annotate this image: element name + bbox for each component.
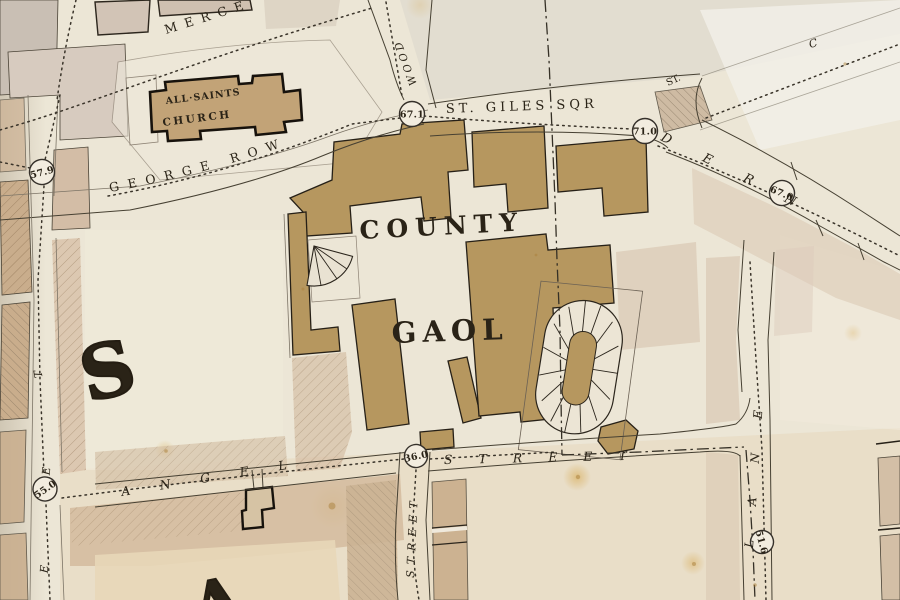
benchmark-67-1: 67.1 xyxy=(400,102,425,127)
svg-text:71.0: 71.0 xyxy=(633,127,657,138)
historic-town-map: 57.9 67.1 71.0 67.0 36.0 55.0 51.6 xyxy=(0,0,900,600)
svg-text:67.1: 67.1 xyxy=(400,110,424,121)
gaol-label: GAOL xyxy=(391,312,509,350)
left-street-letter-e1: E xyxy=(40,466,54,476)
map-photo: 57.9 67.1 71.0 67.0 36.0 55.0 51.6 xyxy=(0,0,900,600)
benchmark-71-0: 71.0 xyxy=(633,119,658,144)
left-street-letter-e2: E xyxy=(38,564,52,574)
